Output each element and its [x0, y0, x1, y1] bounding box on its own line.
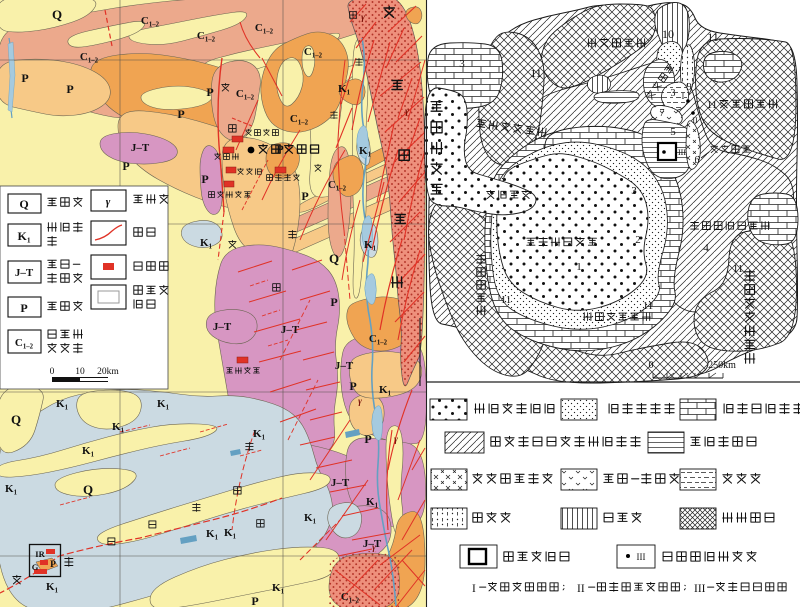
svg-text:I: I	[472, 583, 476, 595]
svg-text:11: 11	[530, 66, 542, 80]
svg-text:2: 2	[635, 234, 641, 246]
svg-text:P: P	[349, 379, 356, 393]
svg-text:Q: Q	[19, 197, 28, 211]
svg-text:7: 7	[660, 108, 665, 119]
svg-text:11: 11	[733, 263, 744, 275]
svg-text:250km: 250km	[708, 360, 736, 371]
svg-text:III: III	[678, 148, 686, 157]
svg-text:γ: γ	[394, 434, 398, 444]
svg-text:11: 11	[707, 30, 719, 44]
svg-text:0: 0	[50, 367, 55, 377]
svg-text:P: P	[301, 189, 308, 203]
svg-text:11: 11	[501, 294, 512, 306]
svg-text:II: II	[577, 583, 585, 595]
svg-text:P: P	[364, 432, 371, 446]
svg-text:9: 9	[686, 81, 692, 93]
svg-text:J–T: J–T	[363, 538, 382, 550]
svg-text:J–T: J–T	[131, 142, 150, 154]
svg-text:J–T: J–T	[331, 477, 350, 489]
svg-text:1: 1	[576, 261, 582, 273]
svg-text:P: P	[20, 301, 27, 315]
svg-text:P: P	[206, 85, 213, 99]
svg-text:5: 5	[670, 126, 676, 138]
svg-text:γ: γ	[405, 106, 409, 116]
svg-text:10: 10	[662, 27, 674, 41]
svg-text:P: P	[276, 142, 283, 156]
svg-text:III: III	[637, 552, 646, 562]
svg-text:γ: γ	[106, 196, 111, 208]
svg-text:G: G	[32, 562, 39, 572]
svg-text:P: P	[66, 82, 73, 96]
svg-text:20km: 20km	[97, 367, 119, 377]
svg-text:10: 10	[75, 367, 85, 377]
svg-text:4: 4	[703, 242, 709, 254]
svg-text:IR: IR	[35, 549, 45, 559]
svg-text:J–T: J–T	[281, 324, 300, 336]
svg-text:P: P	[50, 560, 56, 570]
svg-text:11: 11	[707, 99, 718, 111]
svg-text:3: 3	[631, 185, 637, 197]
svg-text:I: I	[682, 92, 685, 101]
svg-text:P: P	[330, 295, 337, 309]
svg-text:J–T: J–T	[213, 321, 232, 333]
svg-text:Q: Q	[329, 251, 339, 266]
svg-text:Q: Q	[11, 412, 21, 427]
svg-text:P: P	[251, 594, 258, 607]
svg-text:Q: Q	[52, 7, 62, 22]
svg-text:P: P	[177, 107, 184, 121]
svg-text:III: III	[694, 583, 706, 595]
svg-text:J–T: J–T	[15, 267, 34, 279]
svg-text:P: P	[201, 172, 208, 186]
svg-text:6: 6	[695, 155, 700, 166]
svg-text:0: 0	[649, 360, 654, 371]
svg-text:P: P	[21, 71, 28, 85]
svg-text:II: II	[692, 116, 698, 125]
svg-text:3: 3	[459, 58, 465, 70]
svg-text:3: 3	[671, 88, 676, 99]
svg-text:11: 11	[643, 300, 654, 312]
svg-text:Q: Q	[83, 482, 93, 497]
svg-text:P: P	[122, 159, 129, 173]
svg-text:γ: γ	[361, 12, 365, 22]
svg-text:J–T: J–T	[335, 360, 354, 372]
svg-text:γ: γ	[358, 396, 362, 406]
